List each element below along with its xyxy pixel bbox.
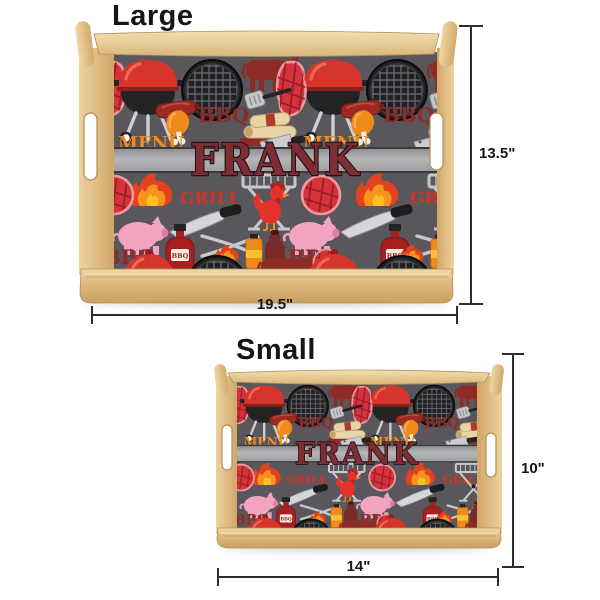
tray-right-post (438, 20, 458, 67)
small-height-dimension-label: 10" (521, 460, 545, 477)
small-height-dimension-line (512, 354, 514, 568)
tray-left-post (213, 363, 229, 395)
large-tray: FRANK (78, 20, 455, 305)
right-handle-cutout (486, 433, 496, 477)
left-handle-cutout (84, 113, 97, 180)
right-handle-cutout (430, 113, 443, 170)
small-width-dimension-label: 14" (218, 558, 499, 575)
tray-left-post (75, 20, 95, 67)
dimension-cap (502, 566, 524, 568)
dimension-cap (502, 353, 524, 355)
large-width-dimension-line (92, 314, 458, 316)
product-size-comparison: BBQ (0, 0, 600, 600)
small-width-dimension-line (218, 576, 499, 578)
tray-right-post (489, 363, 505, 395)
personalized-name-text: FRANK (295, 437, 419, 472)
tray-base (217, 528, 501, 548)
dimension-cap (459, 303, 483, 305)
left-handle-cutout (222, 425, 232, 470)
small-tray: FRANK (215, 363, 503, 550)
dimension-cap (459, 25, 483, 27)
tray-top-rail (228, 370, 490, 385)
large-width-dimension-label: 19.5" (92, 296, 458, 313)
tray-top-rail (94, 31, 439, 57)
large-height-dimension-label: 13.5" (479, 145, 515, 162)
personalized-name-text: FRANK (191, 135, 361, 186)
large-height-dimension-line (470, 26, 472, 304)
